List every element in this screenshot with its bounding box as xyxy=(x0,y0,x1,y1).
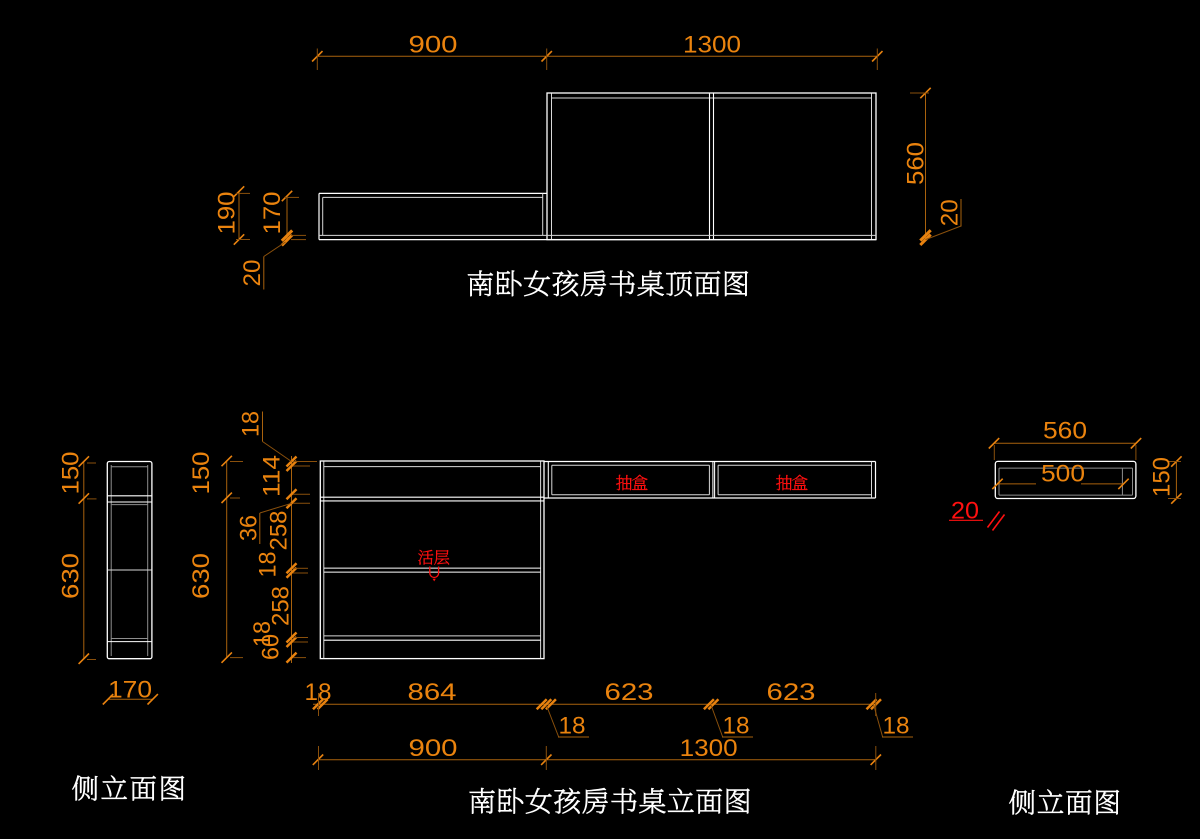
svg-text:864: 864 xyxy=(408,679,457,706)
svg-text:1300: 1300 xyxy=(680,735,738,762)
svg-text:114: 114 xyxy=(259,455,286,497)
svg-text:150: 150 xyxy=(1148,457,1175,497)
svg-text:18: 18 xyxy=(255,552,282,578)
svg-text:18: 18 xyxy=(305,679,332,706)
svg-text:150: 150 xyxy=(188,452,215,495)
svg-text:900: 900 xyxy=(409,32,458,59)
svg-text:170: 170 xyxy=(108,676,152,703)
svg-text:630: 630 xyxy=(58,553,85,599)
svg-text:900: 900 xyxy=(409,735,458,762)
svg-text:500: 500 xyxy=(1041,461,1085,488)
svg-text:170: 170 xyxy=(259,192,286,235)
svg-text:18: 18 xyxy=(238,411,265,437)
svg-text:258: 258 xyxy=(268,586,295,626)
svg-text:150: 150 xyxy=(58,452,85,495)
svg-text:20: 20 xyxy=(239,260,266,287)
svg-text:18: 18 xyxy=(559,713,586,740)
svg-text:36: 36 xyxy=(236,515,263,541)
svg-text:60: 60 xyxy=(258,634,285,660)
svg-text:258: 258 xyxy=(266,511,293,551)
svg-text:623: 623 xyxy=(767,679,816,706)
svg-text:623: 623 xyxy=(605,679,654,706)
svg-text:18: 18 xyxy=(883,713,910,740)
svg-text:1300: 1300 xyxy=(683,32,741,59)
svg-text:190: 190 xyxy=(214,192,241,235)
svg-text:630: 630 xyxy=(188,553,215,599)
svg-text:560: 560 xyxy=(1043,418,1087,445)
svg-text:560: 560 xyxy=(902,142,929,185)
svg-text:20: 20 xyxy=(936,199,963,226)
